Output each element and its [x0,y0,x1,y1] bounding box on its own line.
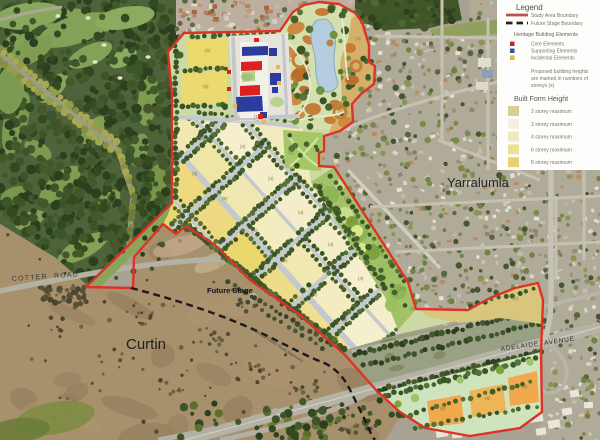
svg-text:(6): (6) [222,196,228,201]
svg-text:(6): (6) [522,384,528,389]
svg-text:Incidental Elements: Incidental Elements [531,56,575,62]
svg-text:(4): (4) [378,252,384,257]
svg-text:(2): (2) [300,96,306,101]
svg-text:Legend: Legend [516,3,543,12]
svg-text:(6): (6) [282,258,288,263]
svg-text:(4): (4) [298,210,304,215]
svg-text:Heritage Building Elements: Heritage Building Elements [514,32,578,38]
svg-text:6 storey maximum: 6 storey maximum [531,147,572,153]
svg-text:(8): (8) [440,406,446,411]
svg-text:Core Elements: Core Elements [531,42,565,48]
svg-text:Future Stage Boundary: Future Stage Boundary [531,21,583,27]
svg-text:(8): (8) [192,171,198,176]
svg-text:(3): (3) [288,150,294,155]
svg-text:(3): (3) [240,144,246,149]
svg-text:storeys (x): storeys (x) [531,83,555,89]
svg-text:(8): (8) [312,292,318,297]
svg-text:2 storey maximum: 2 storey maximum [531,109,572,115]
svg-text:(3): (3) [355,36,361,41]
svg-text:(3): (3) [268,176,274,181]
svg-text:(3): (3) [318,182,324,187]
svg-text:Curtin: Curtin [126,336,166,353]
svg-text:(4): (4) [344,196,350,201]
svg-text:(6): (6) [205,48,211,53]
svg-text:(8): (8) [342,318,348,323]
svg-text:(13): (13) [398,286,407,291]
svg-text:(2): (2) [513,296,519,301]
svg-text:(8): (8) [485,396,491,401]
svg-text:Proposed building heights: Proposed building heights [531,69,589,75]
svg-text:(6): (6) [200,136,206,141]
svg-text:(1): (1) [254,114,260,119]
svg-text:are marked in numbers of: are marked in numbers of [531,76,589,82]
svg-text:(6): (6) [203,84,209,89]
svg-text:4 storey maximum: 4 storey maximum [531,135,572,141]
svg-text:Future Stage: Future Stage [207,286,253,295]
svg-text:Yarralumla: Yarralumla [447,175,510,190]
svg-text:(4): (4) [358,276,364,281]
svg-text:Built Form Height: Built Form Height [514,96,568,103]
svg-text:(4): (4) [328,242,334,247]
svg-text:8 storey maximum: 8 storey maximum [531,160,572,166]
svg-text:(3): (3) [348,218,354,223]
svg-text:(6): (6) [252,228,258,233]
svg-text:Study Area Boundary: Study Area Boundary [531,13,579,19]
svg-text:3 storey maximum: 3 storey maximum [531,122,572,128]
svg-text:Supporting Elements: Supporting Elements [531,49,578,55]
